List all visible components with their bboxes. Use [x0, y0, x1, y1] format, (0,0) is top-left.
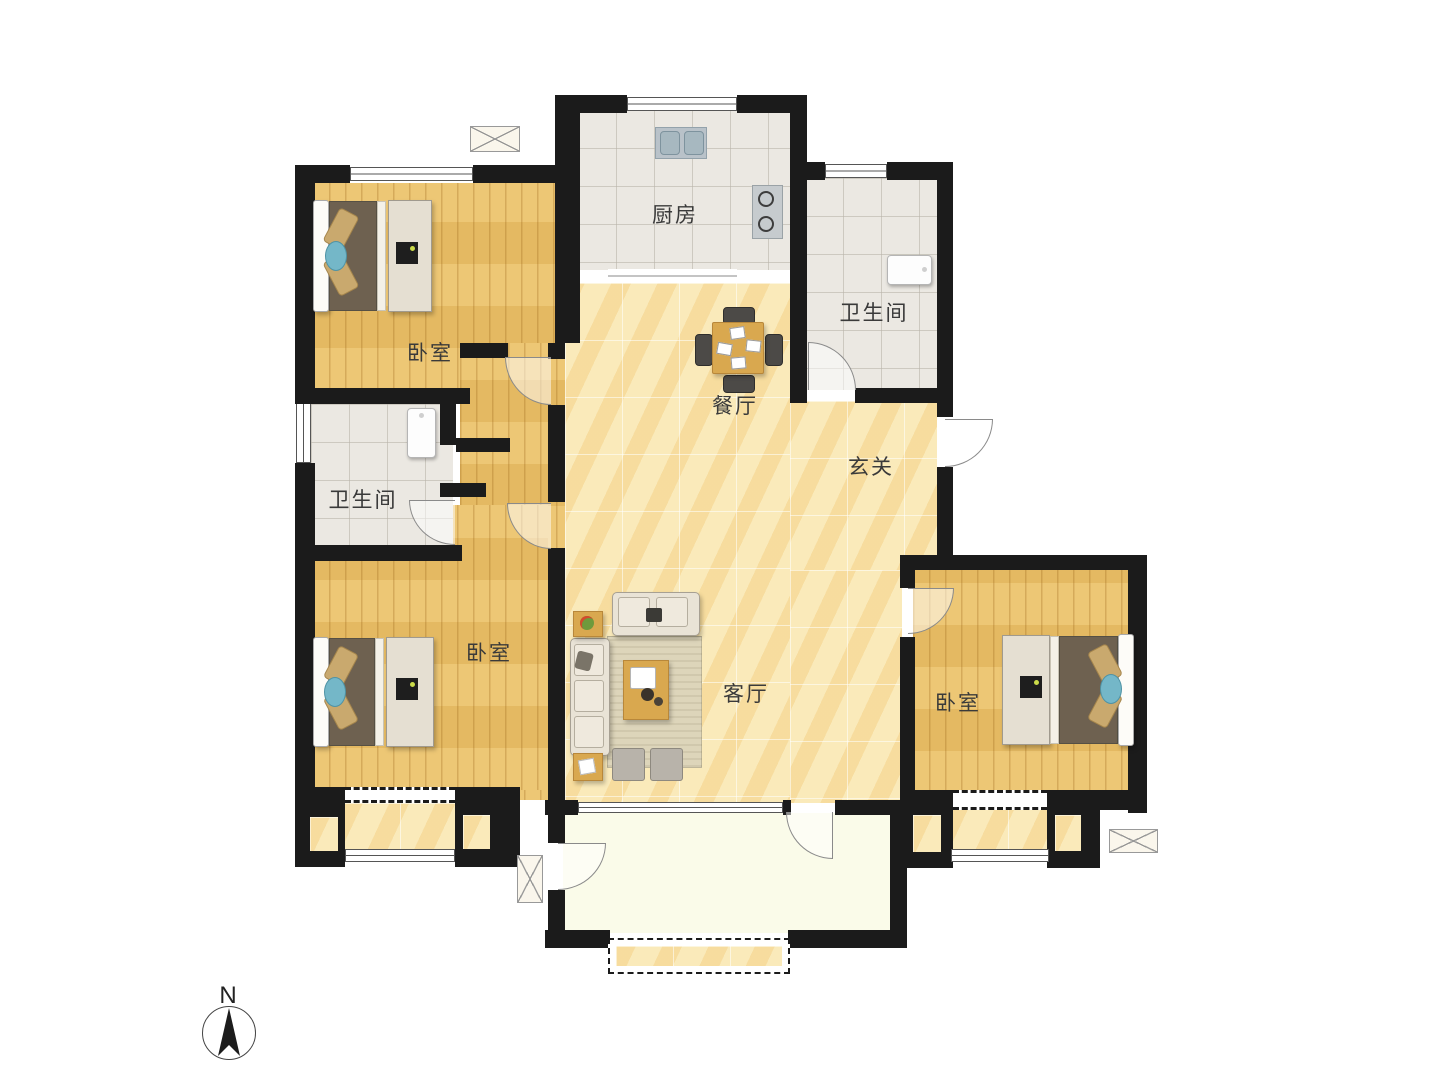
compass: N: [190, 980, 270, 1070]
sofa-cushion: [574, 680, 604, 712]
wall-segment: [900, 555, 1147, 570]
wall-segment: [807, 162, 825, 180]
bed-round-cushion: [1100, 674, 1122, 704]
wall-segment: [900, 637, 915, 803]
wall-segment: [855, 388, 953, 403]
teacup: [654, 697, 663, 706]
door-entry: [945, 419, 993, 467]
room-label-bedroom-a: 卧室: [407, 337, 453, 367]
tv-icon: [1020, 676, 1042, 698]
tv-led: [1034, 680, 1039, 685]
dining-chair: [765, 334, 783, 366]
tv-led: [410, 682, 415, 687]
wall-segment: [295, 787, 345, 803]
wall-segment: [900, 555, 915, 588]
magazines: [578, 758, 596, 776]
room-label-bedroom-c: 卧室: [935, 687, 981, 717]
wall-segment: [295, 545, 462, 561]
window-balcony-east: [951, 849, 1049, 862]
opening-bedroom-c-balcony: [953, 790, 1047, 810]
pier-tile-inset: [913, 815, 941, 852]
room-label-bedroom-b: 卧室: [466, 637, 512, 667]
wall-segment: [456, 438, 510, 452]
sink-basin: [660, 131, 680, 155]
window-living-south: [578, 802, 783, 813]
room-label-bathroom-b: 卫生间: [329, 484, 398, 514]
stove-burner: [758, 216, 774, 232]
washer-knob: [419, 413, 424, 418]
opening-kitchen: [608, 269, 737, 283]
wall-segment: [548, 815, 565, 843]
sofa-tray: [646, 608, 662, 622]
window-kitchen: [627, 97, 737, 111]
plate: [745, 339, 761, 353]
opening-bedroom-b-balcony: [345, 787, 455, 803]
washing-machine: [407, 408, 436, 458]
sink-basin: [684, 131, 704, 155]
pier-tile-inset: [463, 815, 490, 849]
bed-round-cushion: [325, 241, 347, 271]
plant-icon: [580, 616, 594, 630]
sofa-cushion: [574, 716, 604, 748]
window-balcony-west: [345, 849, 455, 862]
wall-segment: [455, 787, 520, 803]
wall-segment: [295, 165, 315, 402]
floor-plan: 卧室 厨房 卫生间 餐厅 玄关 卫生间 卧室 客厅 卧室 N: [0, 0, 1440, 1080]
tea-tray: [630, 667, 656, 689]
tv-icon: [396, 242, 418, 264]
window-bathroom-b: [296, 402, 311, 463]
wall-segment: [548, 548, 565, 803]
pier-tile-inset: [310, 817, 338, 851]
room-label-entry: 玄关: [848, 451, 894, 481]
washing-machine: [887, 255, 932, 285]
room-label-dining: 餐厅: [712, 390, 758, 420]
shaft-box-icon: [1109, 829, 1158, 853]
plate: [729, 326, 746, 340]
room-label-bathroom-a: 卫生间: [840, 297, 909, 327]
wall-segment: [440, 388, 456, 445]
wall-segment: [548, 405, 565, 502]
floor-balcony-east: [951, 803, 1049, 853]
stove-burner: [758, 191, 774, 207]
wall-segment: [555, 95, 580, 343]
plate: [716, 342, 733, 356]
wall-segment: [460, 343, 508, 358]
wall-segment: [790, 95, 807, 403]
ottoman: [612, 748, 645, 781]
tv-led: [410, 246, 415, 251]
bed-sheet: [377, 201, 386, 311]
shaft-box-icon: [517, 855, 543, 903]
floor-balcony-main: [563, 813, 893, 933]
shaft-box-icon: [470, 126, 520, 152]
wall-segment: [440, 483, 486, 497]
room-label-living: 客厅: [723, 678, 769, 708]
washer-knob: [922, 267, 927, 272]
floor-living-east: [790, 570, 902, 803]
wall-segment: [545, 800, 578, 815]
bed-sheet: [375, 638, 384, 746]
wall-segment: [295, 463, 315, 803]
wall-segment: [937, 162, 953, 417]
compass-needle-icon: [214, 1007, 244, 1059]
floor-entry: [790, 401, 937, 570]
window-bedroom-a: [350, 167, 473, 181]
room-label-kitchen: 厨房: [652, 199, 698, 229]
plate: [731, 356, 747, 369]
bed-round-cushion: [324, 677, 346, 707]
teapot: [641, 688, 654, 701]
window-bathroom-a: [825, 164, 887, 178]
tv-icon: [396, 678, 418, 700]
bed-sheet: [1050, 636, 1059, 744]
floor-balcony-west: [343, 803, 457, 853]
ottoman: [650, 748, 683, 781]
protrusion-tile: [616, 946, 782, 966]
pier-tile-inset: [1055, 815, 1081, 851]
dining-chair: [695, 334, 713, 366]
wall-segment: [545, 930, 610, 948]
wall-segment: [937, 467, 953, 568]
